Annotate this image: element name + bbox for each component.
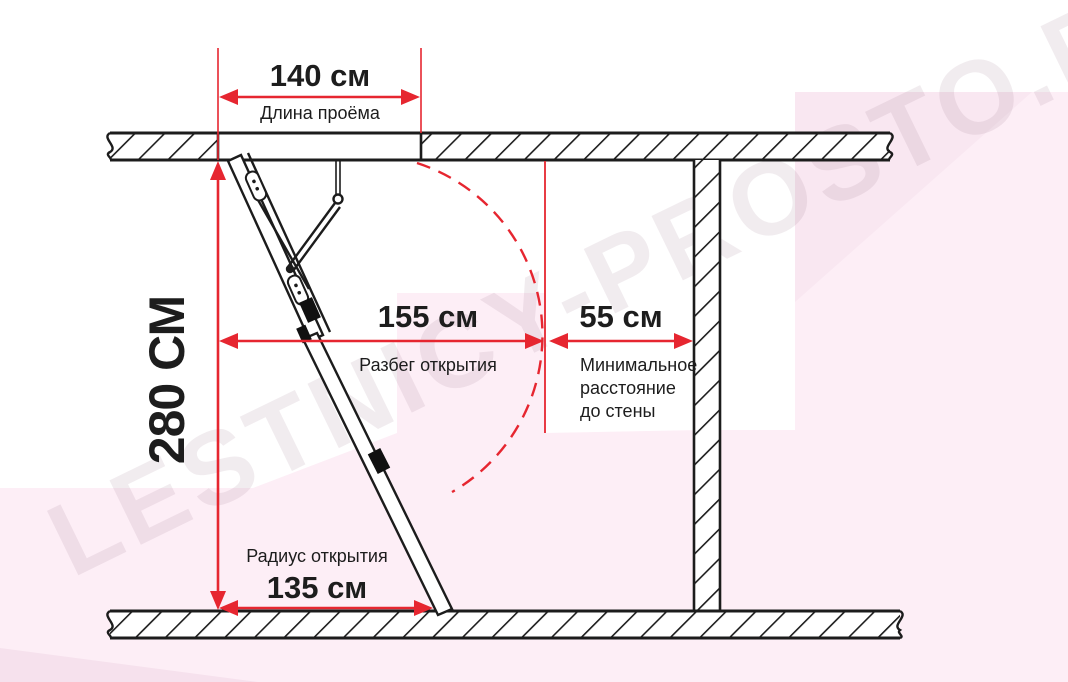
diagram-layer: 140 см Длина проёма 280 СМ 155 см Разбег…: [0, 0, 1068, 682]
wall-distance-value: 55 см: [579, 299, 662, 334]
rod-joint: [334, 195, 343, 204]
opening-radius-value: 135 см: [267, 570, 368, 605]
wall-section: [694, 160, 720, 611]
opening-length-value: 140 см: [270, 58, 371, 93]
spring-strut-b: [293, 207, 340, 271]
wall-distance-label-line1: Минимальное: [580, 355, 697, 375]
spring-strut-a: [288, 203, 335, 267]
wall-distance-label-line3: до стены: [580, 401, 655, 421]
dim-ceiling-height: [210, 161, 226, 610]
opening-length-label: Длина проёма: [260, 103, 381, 123]
opening-run-label: Разбег открытия: [359, 355, 497, 375]
opening-run-value: 155 см: [378, 299, 479, 334]
floor-section: [107, 611, 902, 638]
ceiling-height-value: 280 СМ: [139, 296, 195, 464]
strut-joint: [287, 266, 293, 272]
wall-distance-label-line2: расстояние: [580, 378, 676, 398]
ceiling-section: [107, 133, 892, 160]
attic-ladder-dimension-diagram: LESTNICY-PROSTO.RU: [0, 0, 1068, 682]
opening-radius-label: Радиус открытия: [246, 546, 388, 566]
dim-wall-distance: [549, 333, 693, 349]
dim-opening-run: [219, 333, 544, 349]
